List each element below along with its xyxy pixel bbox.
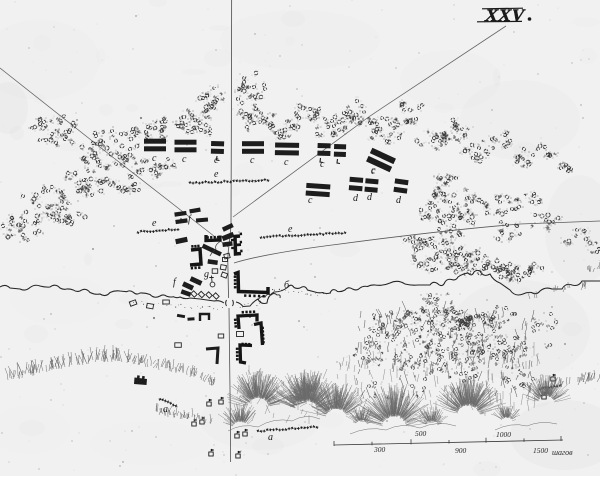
svg-text:c: c xyxy=(308,195,313,206)
svg-text:e: e xyxy=(152,218,157,229)
svg-text:e: e xyxy=(288,224,293,235)
svg-text:c: c xyxy=(250,155,255,166)
svg-text:c: c xyxy=(182,154,187,165)
svg-text:1000: 1000 xyxy=(496,430,511,439)
svg-text:g: g xyxy=(204,269,209,280)
svg-text:1500: 1500 xyxy=(533,446,548,455)
svg-text:c: c xyxy=(371,166,376,177)
svg-text:c: c xyxy=(214,155,219,166)
svg-text:a: a xyxy=(268,432,273,443)
svg-text:c: c xyxy=(152,153,157,164)
svg-text:e: e xyxy=(214,169,219,180)
svg-text:c: c xyxy=(284,157,289,168)
svg-text:300: 300 xyxy=(373,445,386,454)
svg-text:900: 900 xyxy=(455,446,467,455)
svg-text:c: c xyxy=(320,159,325,170)
svg-text:a: a xyxy=(163,404,168,415)
svg-text:шагов: шагов xyxy=(552,448,573,457)
svg-text:500: 500 xyxy=(415,429,427,438)
